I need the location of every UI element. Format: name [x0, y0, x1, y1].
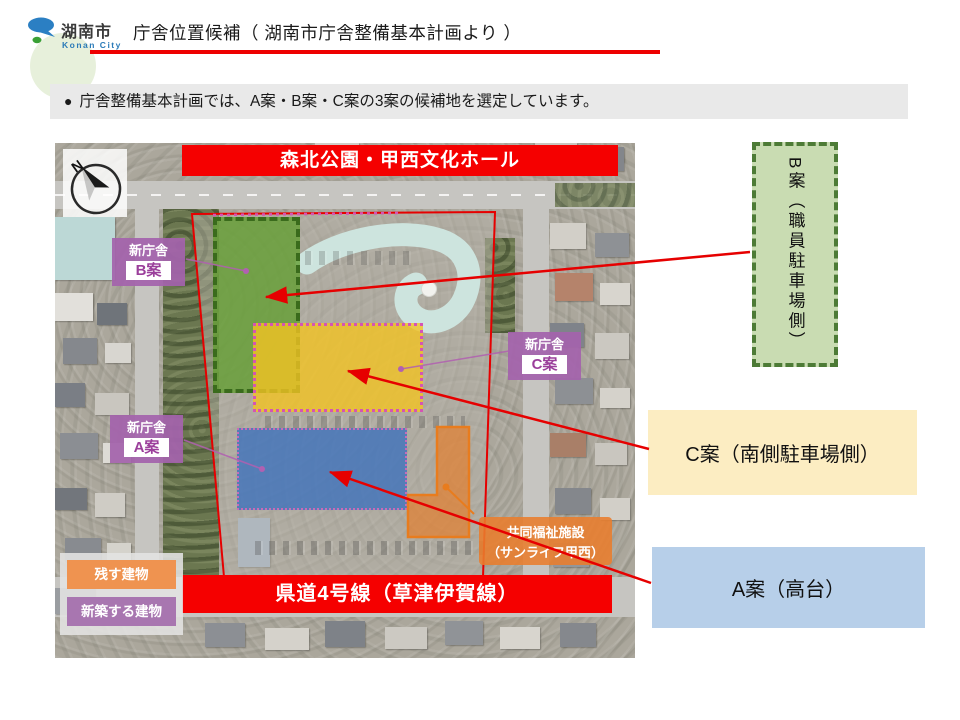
bullet-icon: ●: [64, 93, 72, 109]
site-label-a-title: 新庁舎: [110, 420, 183, 435]
logo-city-name: 湖南市: [61, 18, 112, 42]
site-label-a-plan: A案: [124, 438, 170, 457]
title-underline: [90, 50, 660, 54]
welfare-facility-building: [408, 427, 469, 537]
callout-plan-a-text: A案（高台）: [732, 573, 845, 602]
site-label-b-title: 新庁舎: [112, 243, 185, 258]
north-arrow-icon: N: [63, 149, 127, 217]
legend-new-buildings: 新築する建物: [67, 597, 176, 626]
site-label-new-hall-a: 新庁舎 A案: [110, 415, 183, 463]
map-legend: 残す建物 新築する建物: [60, 553, 183, 635]
bottom-road-banner: 県道4号線（草津伊賀線）: [182, 575, 612, 613]
lead-statement-bar: ●庁舎整備基本計画では、A案・B案・C案の3案の候補地を選定しています。: [50, 84, 908, 119]
facility-label-line2: （サンライフ甲西）: [487, 545, 604, 560]
callout-plan-a: A案（高台）: [652, 547, 925, 628]
callout-plan-b: B案（職員駐車場側）: [752, 142, 838, 367]
site-label-b-plan: B案: [126, 261, 172, 280]
callout-plan-c: C案（南側駐車場側）: [648, 410, 917, 495]
facility-label-line1: 共同福祉施設: [506, 525, 584, 540]
site-label-new-hall-b: 新庁舎 B案: [112, 238, 185, 286]
lead-text: 庁舎整備基本計画では、A案・B案・C案の3案の候補地を選定しています。: [79, 93, 598, 110]
callout-plan-c-text: C案（南側駐車場側）: [685, 438, 879, 467]
page-title: 庁舎位置候補（ 湖南市庁舎整備基本計画より ）: [133, 20, 521, 45]
legend-keep-buildings: 残す建物: [67, 560, 176, 589]
welfare-facility-label: 共同福祉施設 （サンライフ甲西）: [479, 517, 612, 565]
konan-city-logo-icon: [26, 16, 62, 46]
site-label-c-title: 新庁舎: [508, 337, 581, 352]
site-label-c-plan: C案: [522, 355, 568, 374]
top-road-banner: 森北公園・甲西文化ホール: [182, 145, 618, 176]
site-label-new-hall-c: 新庁舎 C案: [508, 332, 581, 380]
callout-plan-b-text: B案（職員駐車場側）: [783, 157, 808, 351]
logo-city-name-en: Konan City: [62, 40, 122, 50]
aerial-map: N 森北公園・甲西文化ホール 県道4号線（草津伊賀線） 新庁舎 B案 新庁舎 C…: [55, 143, 635, 658]
compass-box: N: [63, 149, 127, 217]
